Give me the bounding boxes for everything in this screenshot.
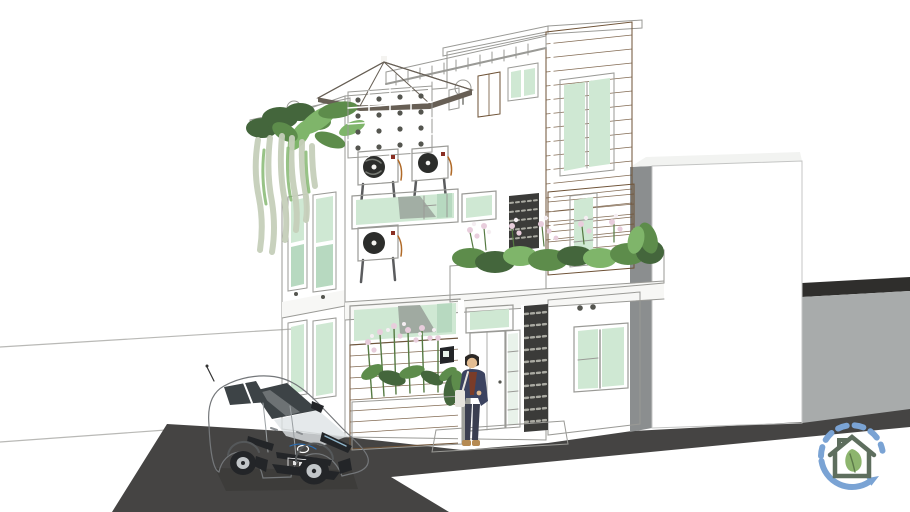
architectural-render (0, 0, 910, 512)
car-rear-wheel (230, 451, 256, 475)
person-shoe (472, 440, 480, 446)
side-window-1f-right (313, 318, 336, 399)
lattice-column-entry (521, 304, 548, 432)
entry-sidelite (506, 330, 520, 428)
shoulder-bag (455, 390, 465, 407)
wall-vent-dot (590, 304, 596, 310)
door-handle (498, 380, 501, 383)
downspout-bracket (321, 295, 325, 299)
render-canvas (0, 0, 910, 512)
person-shoe (462, 440, 471, 446)
car-front-wheel (299, 458, 329, 485)
tower-wood-window (560, 73, 614, 176)
wall-lamp (440, 346, 454, 364)
right-boundary-wall (802, 277, 910, 423)
person-face (467, 358, 477, 368)
watermark-logo (821, 425, 883, 487)
downspout-bracket (294, 292, 298, 296)
wall-vent-dot (577, 305, 583, 311)
